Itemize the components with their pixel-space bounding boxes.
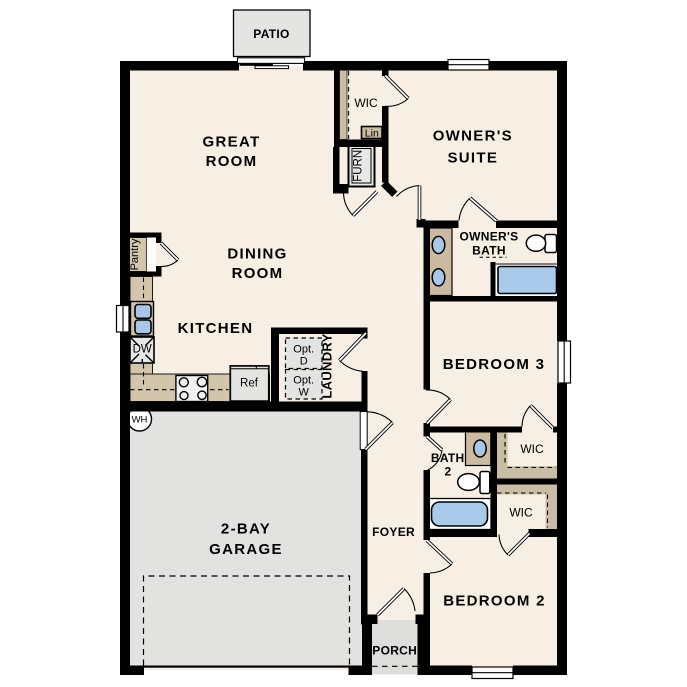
svg-text:BATH: BATH [431, 451, 465, 465]
svg-text:WH: WH [132, 415, 148, 426]
svg-text:OWNER'S: OWNER'S [460, 230, 519, 244]
svg-text:PATIO: PATIO [253, 27, 289, 41]
svg-text:D: D [300, 356, 308, 368]
svg-text:Lin: Lin [365, 127, 379, 139]
svg-text:SUITE: SUITE [447, 150, 498, 167]
svg-text:Opt.: Opt. [293, 344, 314, 356]
svg-text:WIC: WIC [354, 96, 378, 110]
svg-text:DW: DW [133, 344, 152, 356]
svg-text:ROOM: ROOM [206, 153, 258, 170]
svg-text:WIC: WIC [509, 506, 533, 520]
svg-text:BEDROOM 3: BEDROOM 3 [443, 356, 546, 373]
svg-text:Pantry: Pantry [129, 238, 141, 270]
svg-text:LAUNDRY: LAUNDRY [320, 333, 335, 398]
svg-text:W: W [299, 387, 310, 399]
svg-text:PORCH: PORCH [372, 644, 417, 658]
svg-text:ROOM: ROOM [232, 265, 284, 282]
svg-text:KITCHEN: KITCHEN [178, 320, 254, 337]
svg-text:GREAT: GREAT [203, 133, 261, 150]
svg-text:BEDROOM 2: BEDROOM 2 [443, 593, 546, 610]
svg-text:2: 2 [445, 464, 452, 478]
svg-text:BATH: BATH [472, 243, 506, 257]
svg-text:FOYER: FOYER [372, 525, 415, 539]
svg-text:Ref: Ref [240, 378, 259, 390]
svg-text:2-BAY: 2-BAY [221, 520, 271, 537]
svg-text:DINING: DINING [227, 246, 287, 263]
svg-text:GARAGE: GARAGE [209, 541, 283, 558]
svg-text:OWNER'S: OWNER'S [433, 128, 513, 145]
svg-text:FURN: FURN [353, 150, 365, 182]
svg-text:WIC: WIC [520, 442, 544, 456]
svg-text:Opt.: Opt. [293, 375, 314, 387]
